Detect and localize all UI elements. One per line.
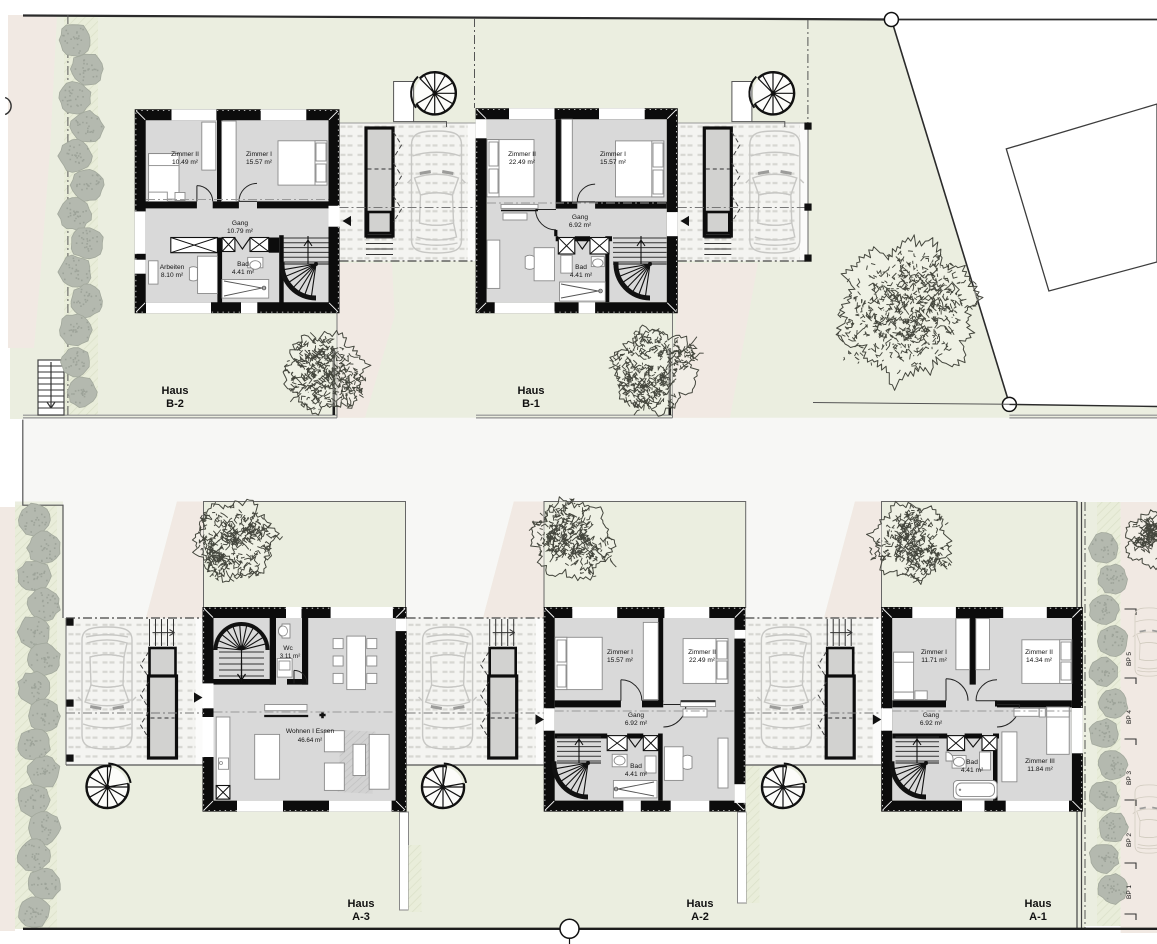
svg-text:Gang: Gang <box>628 712 644 719</box>
svg-text:Haus: Haus <box>162 385 189 397</box>
svg-text:Zimmer II: Zimmer II <box>171 151 199 158</box>
svg-text:Wc: Wc <box>283 645 293 652</box>
svg-text:6.92 m²: 6.92 m² <box>920 720 943 727</box>
svg-text:Bad: Bad <box>237 261 249 268</box>
svg-text:10.49 m²: 10.49 m² <box>172 159 199 166</box>
svg-text:10.79 m²: 10.79 m² <box>227 228 254 235</box>
svg-text:Zimmer I: Zimmer I <box>921 649 947 656</box>
svg-text:BP 2: BP 2 <box>1126 833 1133 847</box>
svg-text:22.49 m²: 22.49 m² <box>509 159 536 166</box>
svg-text:Haus: Haus <box>348 898 375 910</box>
svg-text:Zimmer II: Zimmer II <box>1025 649 1053 656</box>
svg-text:11.84 m²: 11.84 m² <box>1027 766 1053 773</box>
svg-text:Haus: Haus <box>1025 898 1052 910</box>
svg-text:11.71 m²: 11.71 m² <box>921 657 947 664</box>
svg-text:Gang: Gang <box>232 220 248 227</box>
svg-text:4.41 m²: 4.41 m² <box>961 767 984 774</box>
svg-text:B-2: B-2 <box>166 398 184 410</box>
svg-text:4.41 m²: 4.41 m² <box>232 269 255 276</box>
svg-text:BP 5: BP 5 <box>1126 652 1133 666</box>
svg-text:Gang: Gang <box>923 712 939 719</box>
svg-text:15.57 m²: 15.57 m² <box>246 159 273 166</box>
svg-text:A-3: A-3 <box>352 911 370 923</box>
svg-text:15.57 m²: 15.57 m² <box>607 657 634 664</box>
svg-text:3.11 m²: 3.11 m² <box>280 653 301 660</box>
svg-text:15.57 m²: 15.57 m² <box>600 159 627 166</box>
svg-text:B-1: B-1 <box>522 398 540 410</box>
svg-text:22.49 m²: 22.49 m² <box>689 657 716 664</box>
svg-text:Zimmer I: Zimmer I <box>246 151 272 158</box>
svg-text:BP 4: BP 4 <box>1126 710 1133 724</box>
svg-text:4.41 m²: 4.41 m² <box>570 272 593 279</box>
svg-text:Gang: Gang <box>572 214 588 221</box>
svg-text:Zimmer I: Zimmer I <box>600 151 626 158</box>
svg-text:Bad: Bad <box>630 763 642 770</box>
svg-text:14.34 m²: 14.34 m² <box>1026 657 1053 664</box>
svg-text:Bad: Bad <box>575 264 587 271</box>
svg-text:Haus: Haus <box>518 385 545 397</box>
svg-text:Haus: Haus <box>687 898 714 910</box>
svg-text:BP 3: BP 3 <box>1126 771 1133 785</box>
svg-text:4.41 m²: 4.41 m² <box>625 771 648 778</box>
svg-text:Zimmer I: Zimmer I <box>607 649 633 656</box>
svg-text:Bad: Bad <box>966 759 978 766</box>
svg-text:A-2: A-2 <box>691 911 709 923</box>
svg-text:Zimmer II: Zimmer II <box>688 649 716 656</box>
svg-text:6.92 m²: 6.92 m² <box>569 222 592 229</box>
svg-text:8.10 m²: 8.10 m² <box>161 272 184 279</box>
svg-text:Zimmer II: Zimmer II <box>508 151 536 158</box>
svg-text:Arbeiten: Arbeiten <box>160 264 185 271</box>
svg-text:46.64 m²: 46.64 m² <box>298 737 322 744</box>
svg-text:Wohnen I Essen: Wohnen I Essen <box>286 728 335 735</box>
svg-text:BP 1: BP 1 <box>1126 885 1133 899</box>
svg-text:Zimmer III: Zimmer III <box>1025 758 1055 765</box>
svg-text:A-1: A-1 <box>1029 911 1047 923</box>
svg-text:6.92 m²: 6.92 m² <box>625 720 648 727</box>
